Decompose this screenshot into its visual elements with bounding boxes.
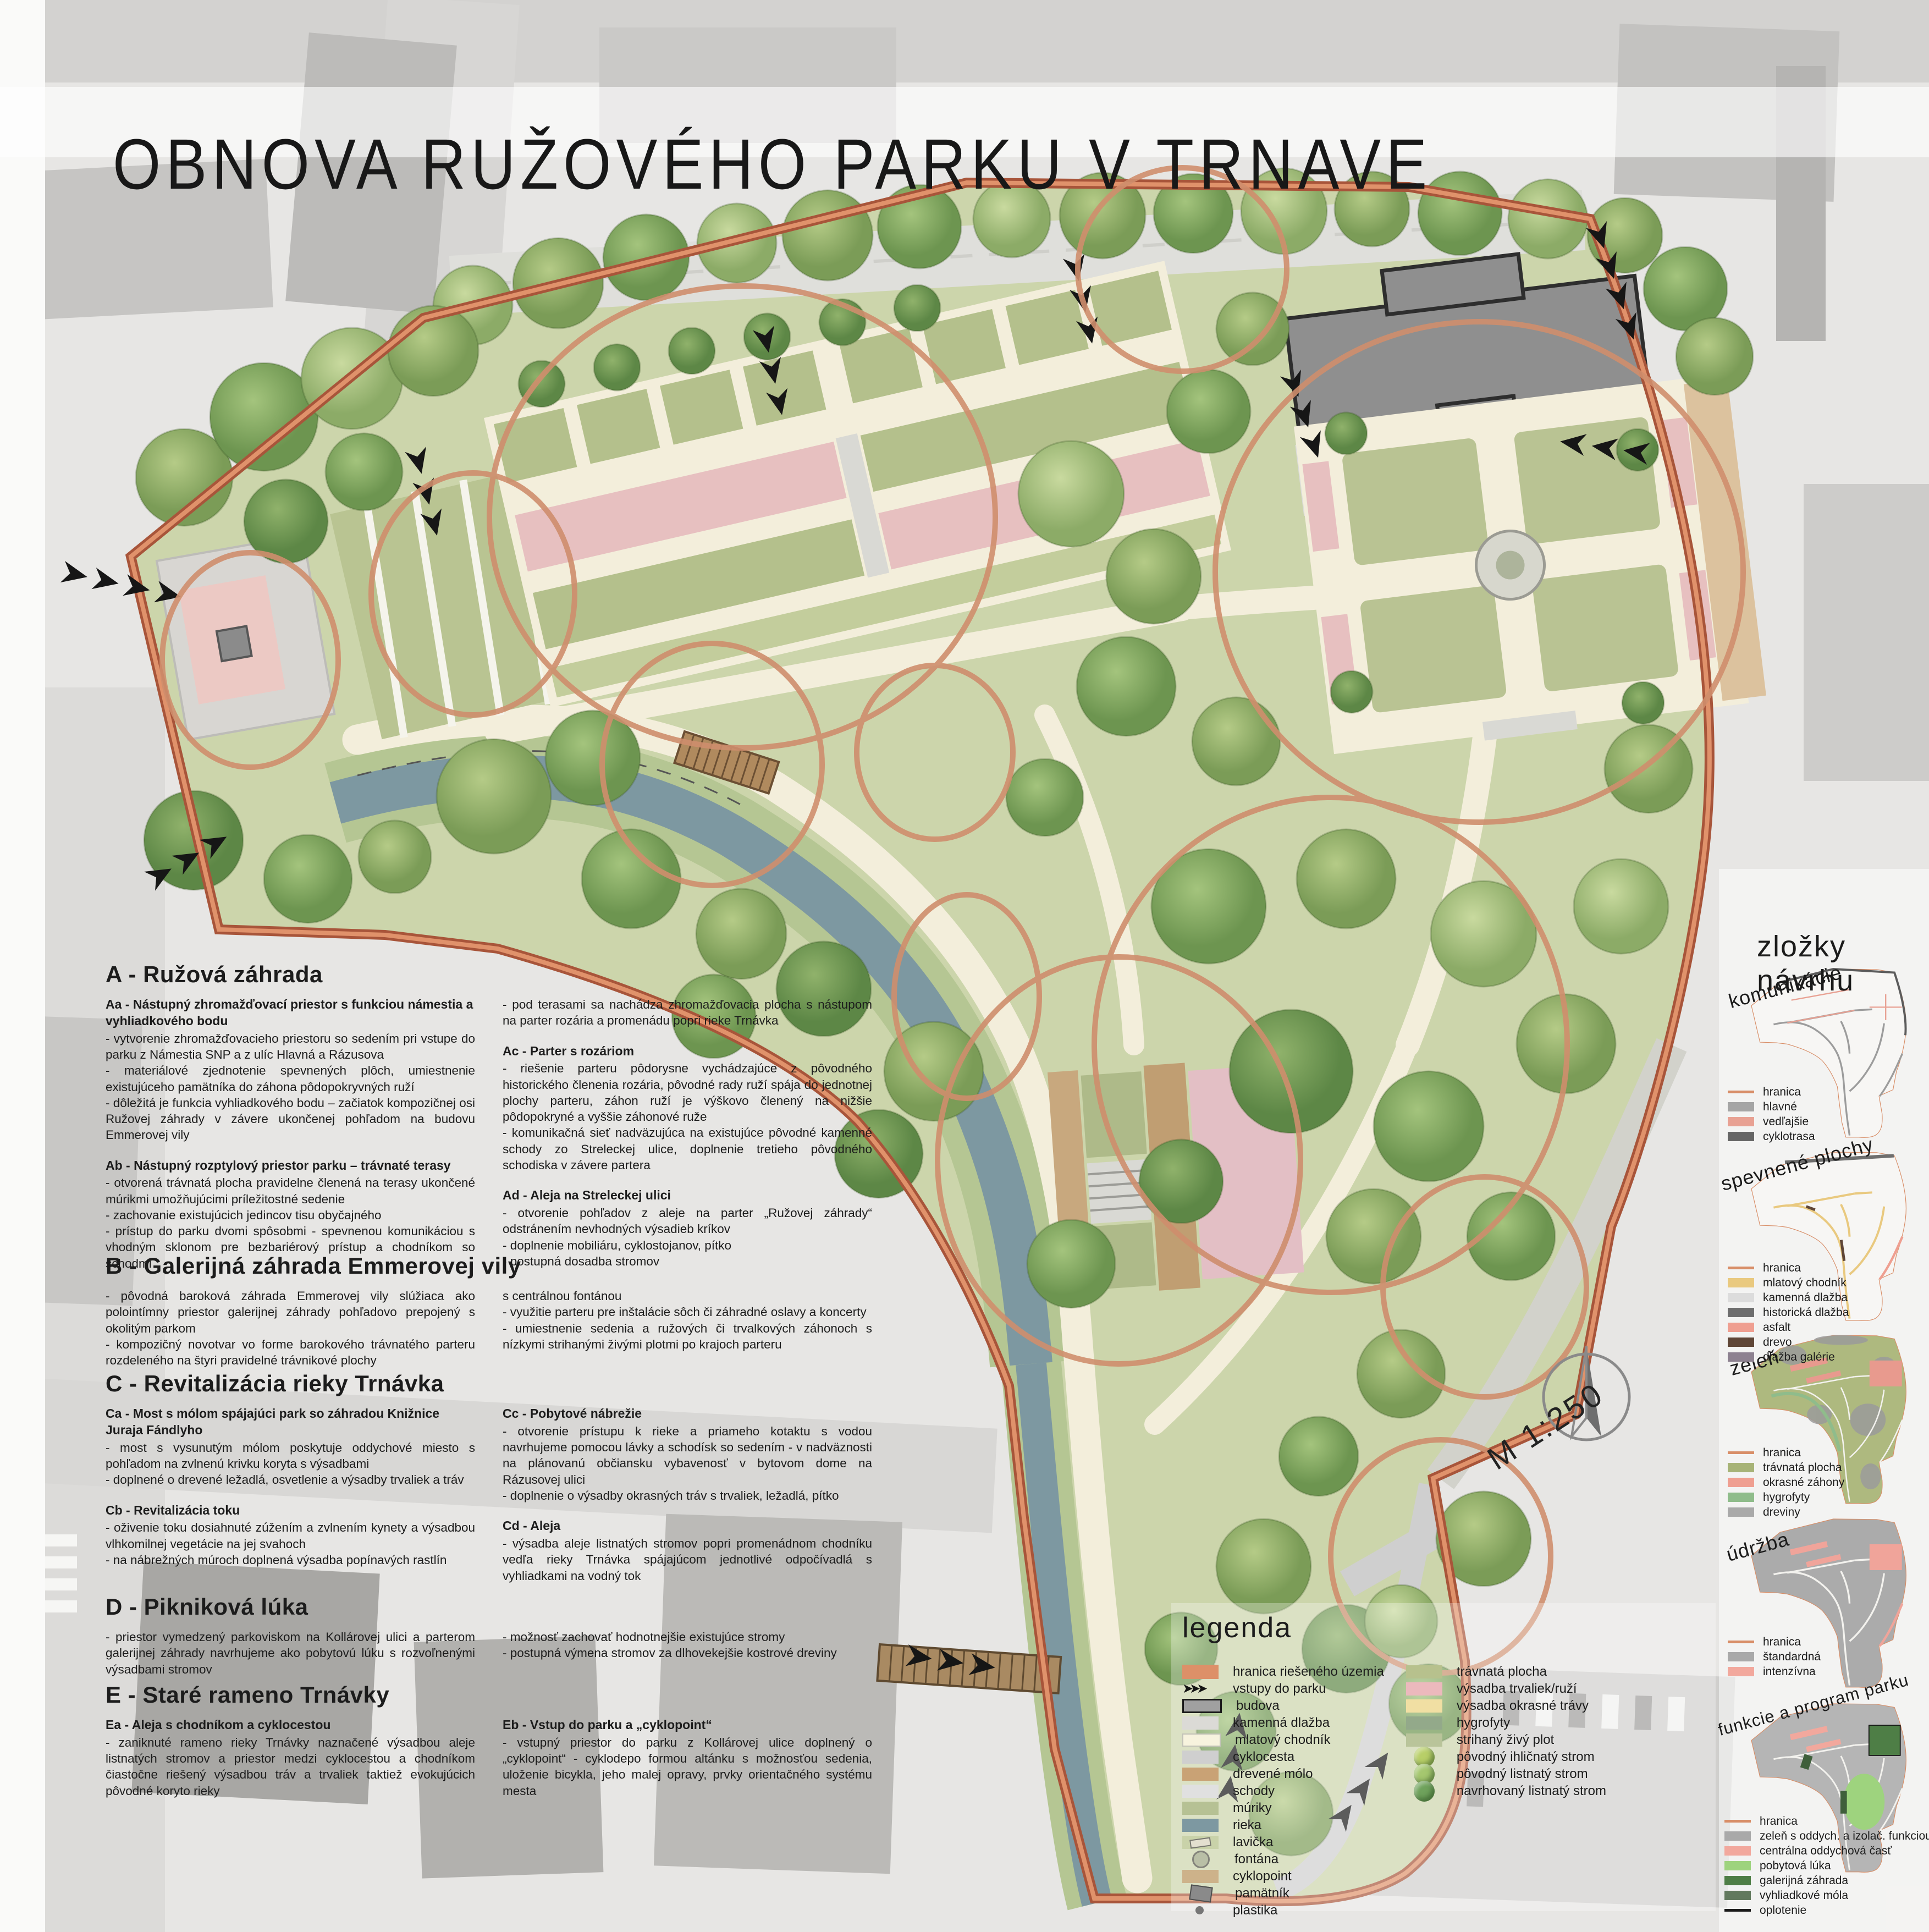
- legend-swatch-icon: [1182, 1870, 1219, 1883]
- legend-row: pobytová lúka: [1724, 1858, 1929, 1873]
- legend-row: výsadba trvaliek/ruží: [1406, 1680, 1606, 1697]
- block-body: - vytvorenie zhromažďovacieho priestoru …: [106, 1031, 475, 1143]
- legend-swatch-icon: [1728, 1478, 1754, 1487]
- legend-row: cyklopoint: [1182, 1868, 1384, 1885]
- block-title: Ca - Most s mólom spájajúci park so záhr…: [106, 1406, 475, 1439]
- legend-swatch-icon: [1182, 1802, 1219, 1815]
- legend-row: pamätník: [1182, 1885, 1384, 1902]
- legend-row: mlatový chodník: [1182, 1731, 1384, 1748]
- legend-row: hranica riešeného územia: [1182, 1663, 1384, 1680]
- legend-label: drevené mólo: [1233, 1766, 1313, 1782]
- legend-swatch-icon: [1728, 1652, 1754, 1661]
- legend-label: pôvodný ihličnatý strom: [1457, 1749, 1595, 1765]
- legend-row: dreviny: [1728, 1505, 1844, 1520]
- block-body: s centrálnou fontánou - využitie parteru…: [503, 1288, 872, 1352]
- block-body: - zaniknuté rameno rieky Trnávky naznače…: [106, 1735, 475, 1799]
- legend-swatch-icon: [1728, 1132, 1754, 1141]
- legend-row: intenzívna: [1728, 1664, 1821, 1679]
- legend-row: okrasné záhony: [1728, 1475, 1844, 1490]
- legend-swatch-icon: [1728, 1451, 1754, 1454]
- legend-row: drevo: [1728, 1335, 1849, 1350]
- legend-column-1: hranica riešeného územia ➤➤➤ vstupy do p…: [1182, 1663, 1384, 1919]
- legend-swatch-icon: [1182, 1836, 1219, 1849]
- legend-label: cyklopoint: [1233, 1869, 1292, 1884]
- block-body: - most s vysunutým mólom poskytuje oddyc…: [106, 1440, 475, 1488]
- legend-label: pamätník: [1235, 1886, 1289, 1901]
- legend-swatch-icon: [1406, 1699, 1442, 1713]
- legend-row: štandardná: [1728, 1649, 1821, 1664]
- minimap-legend-zelen: hranicatrávnatá plochaokrasné záhonyhygr…: [1728, 1445, 1844, 1520]
- legend-swatch-icon: [1728, 1091, 1754, 1093]
- legend-swatch-icon: [1724, 1861, 1751, 1870]
- legend-row: mlatový chodník: [1728, 1275, 1849, 1290]
- legend-label: navrhovaný listnatý strom: [1457, 1784, 1606, 1799]
- legend-swatch-icon: [1182, 1785, 1219, 1798]
- block-body: - priestor vymedzený parkoviskom na Koll…: [106, 1629, 475, 1677]
- legend-swatch-icon: ➤➤➤: [1182, 1682, 1219, 1696]
- legend-label: schody: [1233, 1784, 1275, 1799]
- legend-label: fontána: [1234, 1852, 1278, 1867]
- block-body: - pod terasami sa nachádza zhromažďovaci…: [503, 997, 872, 1029]
- section-heading: A - Ružová záhrada: [106, 961, 886, 988]
- block-title: Eb - Vstup do parku a „cyklopoint“: [503, 1717, 872, 1733]
- legend-swatch-icon: [1195, 1906, 1204, 1914]
- block-body: - otvorenie prístupu k rieke a priameho …: [503, 1423, 872, 1504]
- legend-swatch-icon: [1728, 1463, 1754, 1472]
- minimap-legend-udrzba: hranicaštandardnáintenzívna: [1728, 1634, 1821, 1679]
- legend-row: hranica: [1724, 1814, 1929, 1829]
- block-title: Ea - Aleja s chodníkom a cyklocestou: [106, 1717, 475, 1733]
- legend-label: strihaný živý plot: [1457, 1732, 1554, 1748]
- minimap-legend-funkcie: hranicazeleň s oddych. a izolač. funkcio…: [1724, 1814, 1929, 1918]
- legend-swatch-icon: [1182, 1819, 1219, 1832]
- legend-swatch-icon: [1728, 1667, 1754, 1676]
- legend-label: výsadba trvaliek/ruží: [1457, 1681, 1577, 1697]
- legend-row: oplotenie: [1724, 1903, 1929, 1918]
- legend-label: plastika: [1233, 1903, 1277, 1918]
- section-heading: E - Staré rameno Trnávky: [106, 1682, 886, 1708]
- poster-title: OBNOVA RUŽOVÉHO PARKU V TRNAVE: [113, 123, 1432, 206]
- legend-swatch-icon: [1728, 1308, 1754, 1317]
- legend-row: fontána: [1182, 1851, 1384, 1868]
- legend-swatch-icon: [1182, 1699, 1222, 1713]
- legend-row: lavička: [1182, 1834, 1384, 1851]
- block-title: Aa - Nástupný zhromažďovací priestor s f…: [106, 997, 475, 1030]
- legend-row: hranica: [1728, 1085, 1815, 1099]
- section-c: C - Revitalizácia rieky Trnávka Ca - Mos…: [106, 1370, 886, 1598]
- legend-row: cyklocesta: [1182, 1748, 1384, 1765]
- legend-row: schody: [1182, 1782, 1384, 1799]
- legend-swatch-icon: [1728, 1293, 1754, 1302]
- legend-label: kamenná dlažba: [1233, 1715, 1330, 1731]
- legend-label: lavička: [1233, 1835, 1273, 1850]
- block-body: - oživenie toku dosiahnuté zúžením a zvl…: [106, 1520, 475, 1568]
- legend-swatch-icon: [1189, 1884, 1213, 1902]
- legend-row: hlavné: [1728, 1099, 1815, 1114]
- legend-column-2: trávnatá plocha výsadba trvaliek/ruží vý…: [1406, 1663, 1606, 1799]
- legend-swatch-icon: [1192, 1851, 1210, 1868]
- legend-label: mlatový chodník: [1235, 1732, 1330, 1748]
- section-heading: D - Pikniková lúka: [106, 1594, 886, 1620]
- legend-swatch-icon: [1724, 1831, 1751, 1841]
- legend-row: trávnatá plocha: [1728, 1460, 1844, 1475]
- legend-row: budova: [1182, 1697, 1384, 1714]
- plaza-aa: [157, 535, 334, 740]
- legend-row: múriky: [1182, 1799, 1384, 1817]
- legend-label: vstupy do parku: [1233, 1681, 1326, 1697]
- legend-row: ➤➤➤ vstupy do parku: [1182, 1680, 1384, 1697]
- legend-row: hygrofyty: [1406, 1714, 1606, 1731]
- legend-label: rieka: [1233, 1818, 1261, 1833]
- block-title: Cc - Pobytové nábrežie: [503, 1406, 872, 1422]
- minimap-legend-komunikacie: hranicahlavnévedľajšiecyklotrasa: [1728, 1085, 1815, 1144]
- legend-label: cyklocesta: [1233, 1749, 1294, 1765]
- section-b: B - Galerijná záhrada Emmerovej vily - p…: [106, 1253, 886, 1383]
- legend-row: pôvodný ihličnatý strom: [1406, 1748, 1606, 1765]
- legend-row: pôvodný listnatý strom: [1406, 1765, 1606, 1782]
- block-title: Cb - Revitalizácia toku: [106, 1502, 475, 1519]
- legend-swatch-icon: [1728, 1267, 1754, 1269]
- legend-swatch-icon: [1406, 1665, 1442, 1678]
- legend-row: historická dlažba: [1728, 1305, 1849, 1320]
- legend-swatch-icon: [1728, 1352, 1754, 1362]
- block-title: Ad - Aleja na Streleckej ulici: [503, 1187, 872, 1204]
- legend-swatch-icon: [1728, 1102, 1754, 1111]
- legend-label: hranica riešeného územia: [1233, 1664, 1384, 1680]
- legend-swatch-icon: [1724, 1846, 1751, 1856]
- legend-row: trávnatá plocha: [1406, 1663, 1606, 1680]
- legend-swatch-icon: [1406, 1682, 1442, 1696]
- block-title: Ab - Nástupný rozptylový priestor parku …: [106, 1158, 475, 1174]
- legend-row: hygrofyty: [1728, 1490, 1844, 1505]
- legend-row: vyhliadkové móla: [1724, 1888, 1929, 1903]
- section-d: D - Pikniková lúka - priestor vymedzený …: [106, 1594, 886, 1692]
- legend-row: zeleň s oddych. a izolač. funkciou: [1724, 1829, 1929, 1843]
- legend-label: hygrofyty: [1457, 1715, 1510, 1731]
- section-heading: C - Revitalizácia rieky Trnávka: [106, 1370, 886, 1397]
- legend-row: navrhovaný listnatý strom: [1406, 1782, 1606, 1799]
- legend-row: vedľajšie: [1728, 1114, 1815, 1129]
- legend-swatch-icon: [1728, 1493, 1754, 1502]
- legend-row: asfalt: [1728, 1320, 1849, 1335]
- legend-swatch-icon: [1728, 1337, 1754, 1347]
- legend-row: hranica: [1728, 1634, 1821, 1649]
- legend-swatch-icon: [1724, 1820, 1751, 1823]
- legend-swatch-icon: [1724, 1876, 1751, 1885]
- presentation-board: OBNOVA RUŽOVÉHO PARKU V TRNAVE M 1:250 A…: [0, 0, 1929, 1932]
- block-title: Cd - Aleja: [503, 1518, 872, 1534]
- legend-row: dlažba galérie: [1728, 1350, 1849, 1364]
- block-body: - riešenie parteru pôdorysne vychádzajúc…: [503, 1060, 872, 1173]
- legend-label: výsadba okrasné trávy: [1457, 1698, 1589, 1714]
- legend-row: rieka: [1182, 1817, 1384, 1834]
- legend-row: cyklotrasa: [1728, 1129, 1815, 1144]
- legend-row: výsadba okrasné trávy: [1406, 1697, 1606, 1714]
- legend-swatch-icon: [1406, 1716, 1442, 1730]
- block-body: - výsadba aleje listnatých stromov popri…: [503, 1535, 872, 1584]
- legend-row: centrálna oddychová časť: [1724, 1843, 1929, 1858]
- minimap-legend-spevnene: hranicamlatový chodníkkamenná dlažbahist…: [1728, 1261, 1849, 1364]
- legend-swatch-icon: [1182, 1733, 1221, 1747]
- legend-row: hranica: [1728, 1445, 1844, 1460]
- legend-row: strihaný živý plot: [1406, 1731, 1606, 1748]
- legend-swatch-icon: [1728, 1507, 1754, 1517]
- legend-swatch-icon: [1182, 1665, 1219, 1679]
- legend-swatch-icon: [1728, 1323, 1754, 1332]
- block-title: Ac - Parter s rozáriom: [503, 1043, 872, 1060]
- legend-label: múriky: [1233, 1801, 1272, 1816]
- legend-swatch-icon: [1728, 1641, 1754, 1643]
- legend-swatch-icon: [1728, 1117, 1754, 1126]
- legend-row: drevené mólo: [1182, 1765, 1384, 1782]
- section-e: E - Staré rameno Trnávky Ea - Aleja s ch…: [106, 1682, 886, 1813]
- legend-row: galerijná záhrada: [1724, 1873, 1929, 1888]
- legend-swatch-icon: [1724, 1909, 1751, 1912]
- legend-label: pôvodný listnatý strom: [1457, 1766, 1588, 1782]
- legend-swatch-icon: [1182, 1751, 1219, 1764]
- block-body: - vstupný priestor do parku z Kollárovej…: [503, 1735, 872, 1799]
- legend-row: kamenná dlažba: [1728, 1290, 1849, 1305]
- legend-row: kamenná dlažba: [1182, 1714, 1384, 1731]
- legend-swatch-icon: [1182, 1768, 1219, 1781]
- legend-swatch-icon: [1728, 1278, 1754, 1287]
- legend-label: trávnatá plocha: [1457, 1664, 1547, 1680]
- block-body: - možnosť zachovať hodnotnejšie existujú…: [503, 1629, 872, 1661]
- map-legend: legenda hranica riešeného územia ➤➤➤ vst…: [1182, 1611, 1732, 1919]
- legend-swatch-icon: [1724, 1891, 1751, 1900]
- legend-swatch-icon: [1182, 1716, 1219, 1730]
- block-body: - pôvodná baroková záhrada Emmerovej vil…: [106, 1288, 475, 1368]
- legend-row: hranica: [1728, 1261, 1849, 1275]
- legend-swatch-icon: [1414, 1781, 1435, 1802]
- legend-label: budova: [1236, 1698, 1280, 1714]
- legend-title: legenda: [1182, 1611, 1732, 1644]
- section-a: A - Ružová záhrada Aa - Nástupný zhromaž…: [106, 961, 886, 1286]
- section-heading: B - Galerijná záhrada Emmerovej vily: [106, 1253, 886, 1279]
- legend-row: plastika: [1182, 1902, 1384, 1919]
- legend-swatch-icon: [1406, 1733, 1442, 1747]
